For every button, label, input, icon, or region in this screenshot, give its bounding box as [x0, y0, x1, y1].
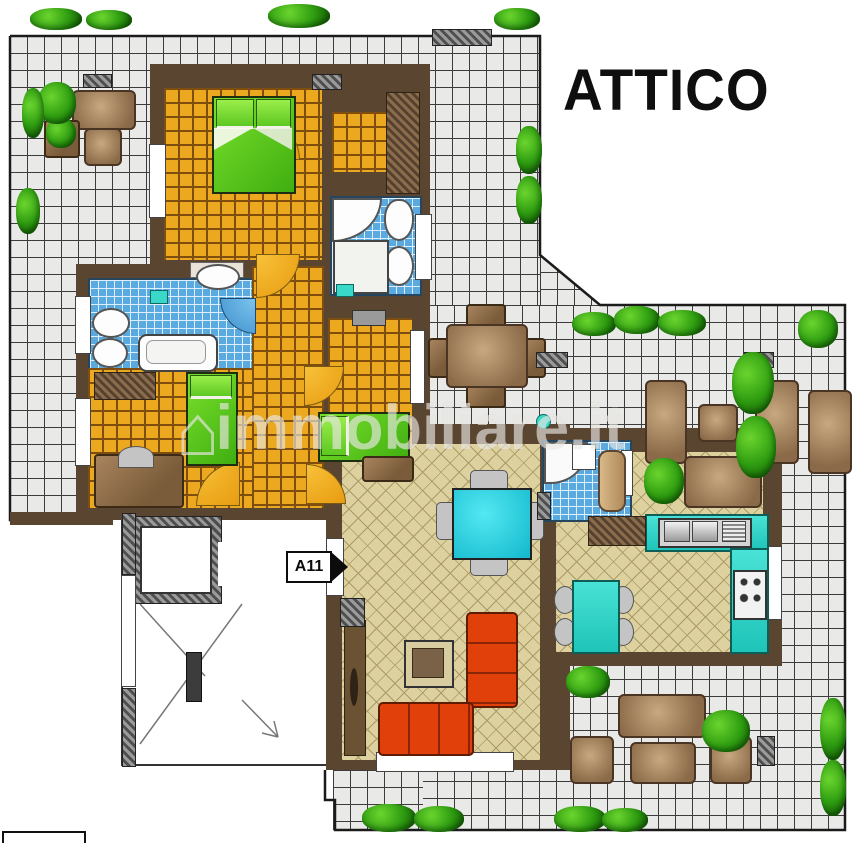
watermark: ⌂immobiliare.it [176, 390, 625, 472]
bush-icon [602, 808, 648, 832]
entrance-label-text: A11 [295, 558, 323, 576]
bed-fold [253, 128, 292, 150]
floor-plan: A11 [0, 0, 854, 843]
page-title: ATTICO [563, 56, 770, 124]
staircase-upper-flight [224, 612, 284, 644]
doormat [537, 492, 551, 520]
side-table [698, 404, 738, 442]
toilet [92, 308, 130, 338]
house-icon: ⌂ [176, 391, 220, 471]
bush-icon [86, 10, 132, 30]
bath-accessory [336, 284, 354, 297]
desk-chair [118, 446, 154, 468]
pillow [216, 99, 254, 129]
outdoor-dining-table [446, 324, 528, 388]
outdoor-sofa [618, 694, 706, 738]
bed-fold [214, 128, 253, 150]
sink-basin [664, 521, 690, 542]
dresser [352, 310, 386, 326]
sofa [466, 612, 518, 708]
bush-icon [414, 806, 464, 832]
elevator-cab [140, 526, 212, 594]
terrace-diagonal-corner [540, 255, 600, 305]
bush-icon [644, 458, 684, 504]
sofa [378, 702, 474, 756]
wardrobe [94, 372, 156, 400]
stairwell-window [121, 575, 136, 687]
lounge-chair [808, 390, 852, 474]
bush-icon [516, 126, 542, 174]
bush-icon [494, 8, 540, 30]
bathtub-inner [146, 340, 206, 364]
washbasin [196, 264, 240, 290]
kitchen-table [572, 580, 620, 654]
bush-icon [572, 312, 616, 336]
stove [733, 570, 767, 620]
lounge-chair [645, 380, 687, 464]
bush-icon [554, 806, 606, 832]
outdoor-table [84, 128, 122, 166]
bush-icon [516, 176, 542, 224]
wall-left-strip [10, 512, 113, 525]
bush-icon [30, 8, 82, 30]
dining-table [452, 488, 532, 560]
doormat [83, 74, 112, 88]
bidet [92, 338, 128, 368]
bush-icon [22, 88, 44, 138]
bush-icon [362, 804, 416, 832]
entrance-label-a11: A11 [286, 551, 332, 583]
toilet [384, 199, 414, 241]
outdoor-coffee-table [630, 742, 696, 784]
bush-icon [614, 306, 660, 334]
entrance-arrow-icon [330, 551, 348, 583]
bush-icon [16, 188, 40, 234]
bath-accessory [150, 290, 168, 304]
bush-icon [798, 310, 838, 348]
bush-icon [736, 416, 776, 478]
watermark-text: immobiliare.it [216, 393, 626, 463]
bush-icon [820, 760, 846, 816]
bush-icon [268, 4, 330, 28]
legend-frame-fragment [2, 831, 86, 843]
window-master-left [149, 144, 166, 218]
outdoor-sofa [72, 90, 136, 130]
doormat [757, 736, 775, 766]
planter-box [312, 74, 342, 90]
pillow [256, 99, 291, 129]
stairwell-wall-bottom [122, 688, 136, 767]
bush-icon [732, 352, 774, 414]
bush-icon [820, 698, 846, 760]
outdoor-armchair [570, 736, 614, 784]
bush-icon [658, 310, 706, 336]
bush-icon [566, 666, 610, 698]
window-bathroom2-left [75, 296, 91, 354]
sink-basin [692, 521, 718, 542]
planter-box [432, 29, 492, 46]
window-bathroom1-right [415, 214, 432, 280]
doormat [340, 598, 365, 627]
elevator-door [218, 542, 228, 586]
sink-drainer [722, 521, 746, 542]
stairwell-wall-top [122, 513, 136, 575]
sideboard-handle [350, 668, 358, 706]
coffee-table-top [412, 648, 444, 678]
closet-floor [332, 112, 386, 172]
doormat [536, 352, 568, 368]
bush-icon [702, 710, 750, 752]
stair-railing [186, 652, 202, 702]
kitchen-cabinet [588, 516, 646, 546]
window-bedroom2-left [75, 398, 91, 466]
wardrobe [386, 92, 420, 194]
